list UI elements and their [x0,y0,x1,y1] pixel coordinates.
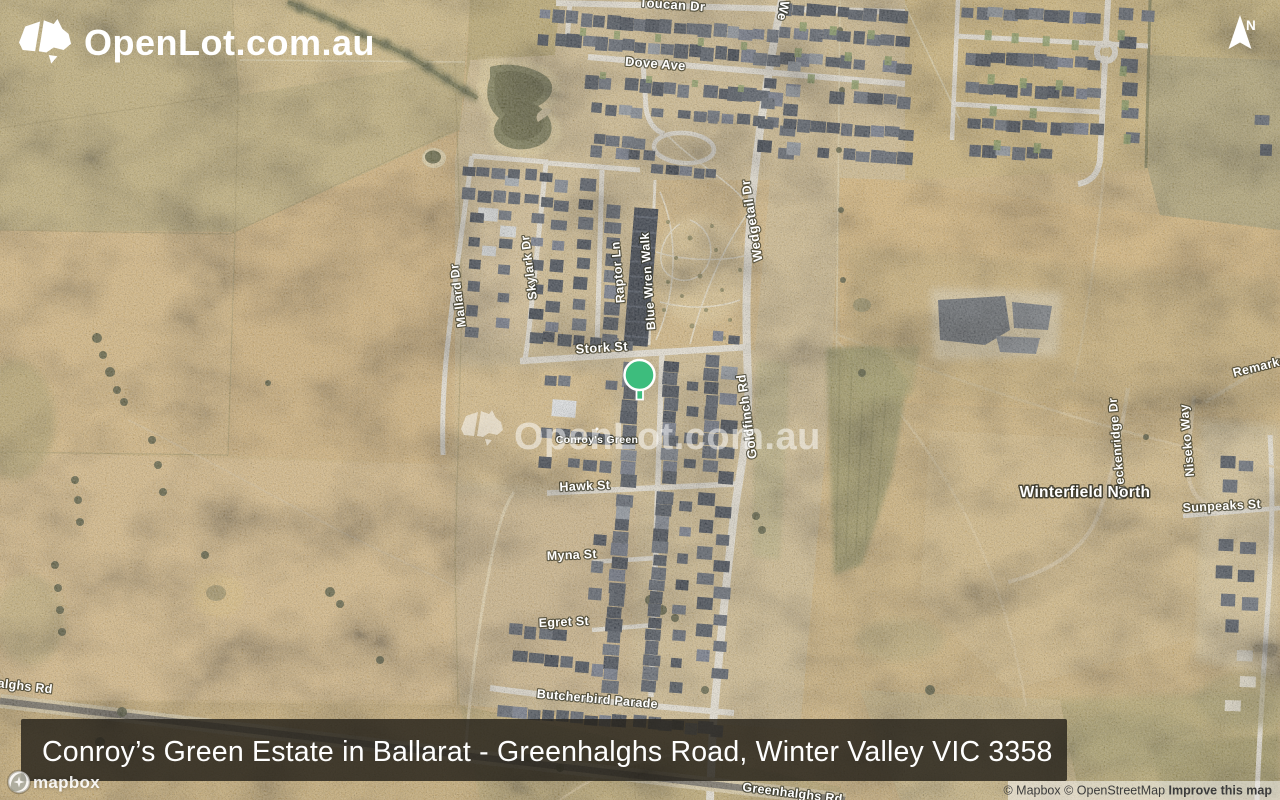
svg-text:Egret St: Egret St [538,614,589,630]
svg-text:OpenLot.com.au: OpenLot.com.au [514,416,821,458]
svg-text:Winterfield North: Winterfield North [1020,484,1151,501]
svg-text:N: N [1246,18,1256,33]
svg-text:Myna St: Myna St [547,547,598,563]
svg-text:Stork St: Stork St [575,338,628,356]
svg-text:mapbox: mapbox [33,773,100,792]
svg-text:© Mapbox © OpenStreetMap Impro: © Mapbox © OpenStreetMap Improve this ma… [1003,784,1272,798]
svg-text:Conroy’s Green Estate in Balla: Conroy’s Green Estate in Ballarat - Gree… [42,736,1053,768]
svg-text:Hawk St: Hawk St [559,478,611,494]
svg-text:OpenLot.com.au: OpenLot.com.au [84,22,375,63]
